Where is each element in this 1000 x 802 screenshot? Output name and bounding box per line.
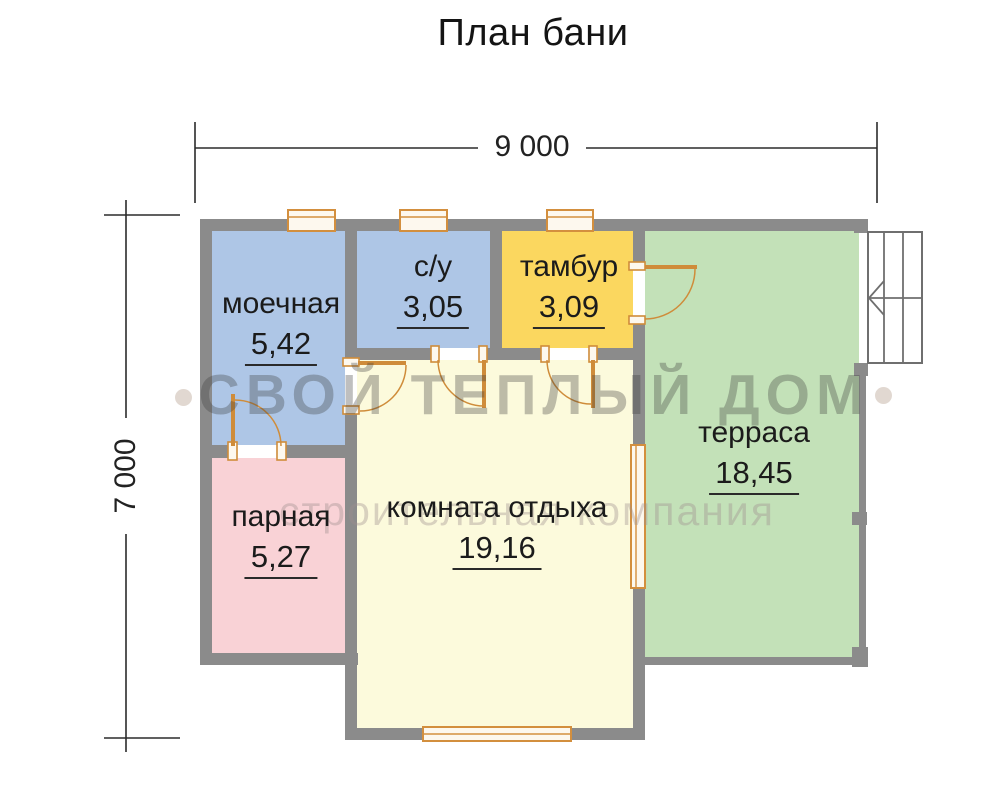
wall-su-tambur — [490, 219, 502, 360]
door-wash-post-a — [343, 358, 359, 366]
room-name: терраса — [698, 416, 810, 449]
room-area: 3,09 — [533, 290, 605, 329]
door-terrace-post-a — [629, 262, 645, 270]
door-terrace-post-b — [629, 316, 645, 324]
floor-plan-page: План бани — [0, 0, 1000, 802]
door-su-post-a — [431, 346, 439, 362]
post-top-right — [854, 219, 868, 233]
room-area: 3,05 — [397, 290, 469, 329]
wall-wash-steam-b — [281, 445, 357, 458]
room-name: парная — [231, 500, 330, 533]
door-tambur-leaf — [591, 360, 595, 408]
door-wash-post-b — [343, 406, 359, 414]
wall-ko-bottom-b — [571, 728, 645, 740]
wall-right-a — [633, 219, 645, 264]
room-label-komnata: комната отдыха 19,16 — [387, 491, 608, 570]
floor-plan-drawing — [0, 0, 1000, 802]
wall-right-c — [633, 588, 645, 740]
stairs — [868, 232, 922, 363]
wall-wash-steam-a — [200, 445, 232, 458]
dimension-height-label: 7 000 — [109, 430, 143, 521]
dimension-width-label: 9 000 — [486, 130, 577, 164]
watermark-dot-left — [175, 389, 192, 406]
wall-center-upper — [345, 219, 357, 363]
room-label-su: с/у 3,05 — [397, 250, 469, 329]
room-name: моечная — [222, 287, 340, 320]
door-wash-leaf — [358, 361, 406, 365]
door-tambur-post-b — [589, 346, 597, 362]
room-name: с/у — [397, 250, 469, 283]
room-name: комната отдыха — [387, 491, 608, 524]
wall-right-b — [633, 320, 645, 445]
window-tambur — [547, 210, 593, 231]
wall-terrace-bottom — [645, 657, 867, 665]
post-bottom-right — [852, 647, 868, 667]
watermark-dot-right — [875, 387, 892, 404]
door-terrace-leaf — [645, 265, 697, 269]
room-area: 5,27 — [245, 540, 317, 579]
wall-center-lower — [345, 411, 357, 740]
post-terrace-mid — [852, 512, 867, 525]
window-komnata-terrasa — [631, 445, 645, 588]
room-area: 5,42 — [245, 327, 317, 366]
wall-bottom-left — [200, 653, 358, 665]
window-su — [400, 210, 447, 231]
room-area: 18,45 — [709, 456, 799, 495]
room-name: тамбур — [520, 250, 618, 283]
room-label-tambur: тамбур 3,09 — [520, 250, 618, 329]
room-area: 19,16 — [452, 531, 542, 570]
wall-ko-bottom-a — [345, 728, 423, 740]
door-su-leaf — [482, 360, 486, 408]
wall-left — [200, 219, 212, 665]
room-label-parnaya: парная 5,27 — [231, 500, 330, 579]
door-steam-leaf — [231, 394, 235, 446]
door-tambur-post-a — [541, 346, 549, 362]
room-label-moechnaya: моечная 5,42 — [222, 287, 340, 366]
door-su-post-b — [479, 346, 487, 362]
room-label-terrasa: терраса 18,45 — [698, 416, 810, 495]
window-moechnaya — [288, 210, 335, 231]
